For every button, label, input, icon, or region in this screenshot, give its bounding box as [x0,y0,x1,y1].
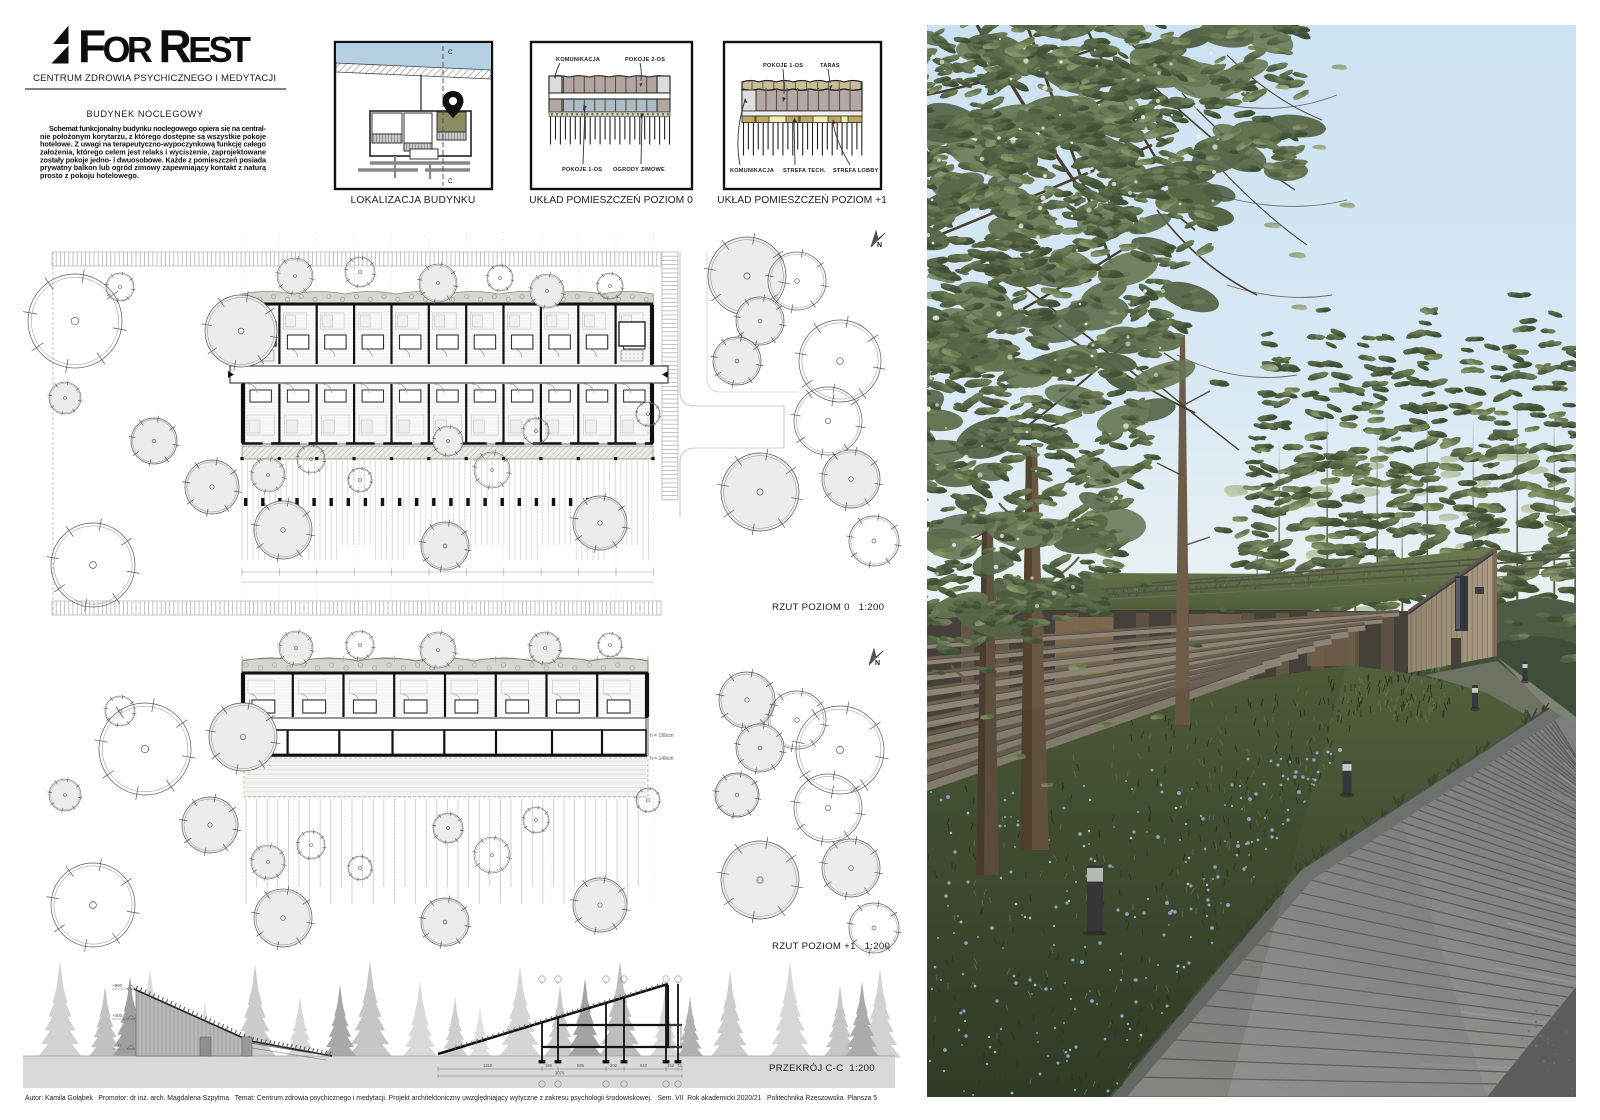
svg-text:KOMUNIKACJA: KOMUNIKACJA [556,57,600,63]
svg-text:OGRODY ZIMOWE: OGRODY ZIMOWE [613,167,665,173]
svg-text:POKOJE 2-OS: POKOJE 2-OS [625,57,665,63]
svg-text:CENTRUM ZDROWIA PSYCHICZNEGO I: CENTRUM ZDROWIA PSYCHICZNEGO I MEDYTACJI [33,73,278,84]
svg-text:202: 202 [610,1063,618,1068]
svg-text:PRZEKRÓJ C-C 1:200: PRZEKRÓJ C-C 1:200 [769,1063,875,1074]
svg-text:BUDYNEK NOCLEGOWY: BUDYNEK NOCLEGOWY [86,109,203,119]
svg-text:+800: +800 [112,983,123,988]
svg-text:TARAS: TARAS [820,63,840,69]
svg-text:STREFA LOBBY: STREFA LOBBY [833,168,878,174]
svg-text:prosto z pokoju hotelowego.: prosto z pokoju hotelowego. [40,171,139,180]
svg-text:POKOJE 1-OS: POKOJE 1-OS [562,167,602,173]
svg-text:KOMUNIKACJA: KOMUNIKACJA [730,168,774,174]
svg-text:1318: 1318 [483,1063,493,1068]
svg-text:N: N [877,242,882,249]
svg-text:UKŁAD POMIESZCZEŃ POZIOM +1: UKŁAD POMIESZCZEŃ POZIOM +1 [717,193,887,206]
svg-text:642: 642 [640,1063,648,1068]
svg-text:RZUT POZIOM 0 1:200: RZUT POZIOM 0 1:200 [772,602,884,613]
svg-text:C: C [448,178,453,185]
svg-text:LOKALIZACJA BUDYNKU: LOKALIZACJA BUDYNKU [350,195,475,206]
svg-text:h = 140cm: h = 140cm [650,756,674,762]
svg-text:STREFA TECH.: STREFA TECH. [783,168,826,174]
svg-text:FOR REST: FOR REST [78,20,254,72]
svg-text:585: 585 [577,1063,585,1068]
svg-text:Autor: Kamila Gołąbek Promot: Autor: Kamila Gołąbek Promotor: dr inż. … [25,1093,877,1102]
svg-text:N: N [875,660,880,667]
svg-text:C: C [448,49,453,56]
svg-text:h = 190cm: h = 190cm [650,733,674,739]
svg-text:+400: +400 [112,1013,123,1018]
svg-text:166: 166 [545,1063,553,1068]
svg-text:3070: 3070 [555,1071,565,1076]
svg-text:152: 152 [667,1063,675,1068]
svg-text:POKOJE 1-OS: POKOJE 1-OS [763,63,803,69]
svg-text:UKŁAD POMIESZCZEŃ POZIOM 0: UKŁAD POMIESZCZEŃ POZIOM 0 [529,193,693,206]
svg-text:72: 72 [677,1063,682,1068]
svg-text:RZUT POZIOM +1 1:200: RZUT POZIOM +1 1:200 [772,941,890,952]
